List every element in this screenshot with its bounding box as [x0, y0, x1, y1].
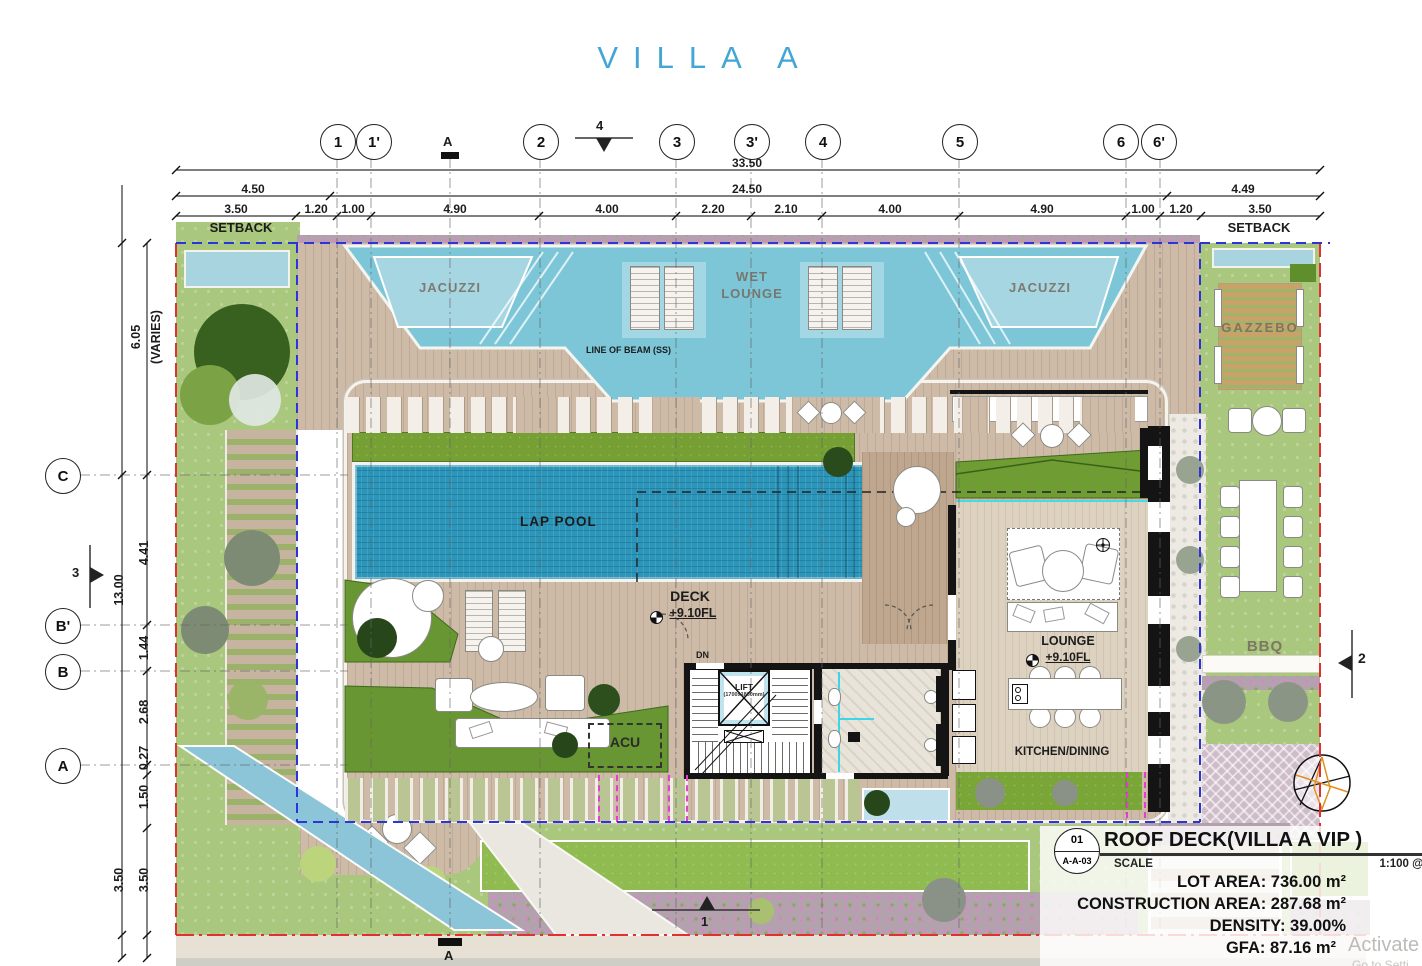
- tree-gray-3: [1202, 680, 1246, 724]
- lounge-left-wall: [948, 505, 956, 670]
- lap-pool-label: LAP POOL: [520, 514, 597, 529]
- wet-lounge-label: WET LOUNGE: [712, 268, 792, 302]
- dim-seg-4: 4.00: [585, 202, 629, 216]
- kitchen-counter-1: [952, 670, 976, 700]
- deck-level-label: +9.10FL: [662, 606, 724, 620]
- fireplace-inner: [1148, 446, 1162, 480]
- round-daybed-right: [893, 466, 941, 514]
- grid-bubble-6p: 6': [1141, 124, 1177, 160]
- watermark-line2: Go to Setti: [1352, 958, 1409, 966]
- lounge-level-label: +9.10FL: [1036, 650, 1100, 664]
- water-lounger-4: [842, 266, 872, 330]
- planter-tree-1: [864, 790, 890, 816]
- tree-green-small: [228, 680, 268, 720]
- tree-gray-5: [540, 882, 580, 922]
- dim-v-seg-5: 3.50: [137, 868, 151, 892]
- dim-v-top-note: (VARIES): [149, 310, 163, 364]
- dim-v-outer: 3.50: [112, 868, 126, 892]
- lift-shaft: [718, 670, 770, 726]
- kitchen-counter-2: [952, 704, 976, 732]
- stat-density: DENSITY: 39.00%: [1040, 917, 1346, 936]
- grid-bubble-6: 6: [1103, 124, 1139, 160]
- garden-chair-1: [1228, 408, 1252, 433]
- title-rule: [1100, 853, 1422, 856]
- section-label-left: 3: [72, 565, 79, 580]
- toilet-1: [828, 688, 841, 706]
- bush-2: [300, 846, 336, 882]
- stat-construction-area: CONSTRUCTION AREA: 287.68 m²: [1040, 895, 1346, 914]
- dining-chair-l1: [1220, 486, 1240, 508]
- tree-gray-6: [922, 878, 966, 922]
- grid-bubble-1p: 1': [356, 124, 392, 160]
- dim-v-seg-3: 0.27: [137, 746, 151, 770]
- datum-label-bottom: A: [444, 948, 453, 963]
- dim-v-seg-4: 1.50: [137, 785, 151, 809]
- acu-label: ACU: [592, 734, 658, 750]
- lap-pool: [352, 462, 872, 582]
- grid-bubble-2: 2: [523, 124, 559, 160]
- lounger-gap-5: [1082, 397, 1135, 433]
- water-lounger-1: [630, 266, 660, 330]
- drawing-title: VILLA A: [540, 40, 870, 76]
- grid-bubble-A: A: [45, 748, 81, 784]
- bush-3: [414, 866, 446, 898]
- title-block: 01 A-A-03 ROOF DECK(VILLA A VIP ) SCALE …: [1040, 826, 1422, 966]
- lounge-label: LOUNGE: [1036, 634, 1100, 648]
- water-lounger-2: [664, 266, 694, 330]
- dim-v-seg-0: 4.41: [137, 541, 151, 565]
- grid-bubble-C: C: [45, 458, 81, 494]
- core-door-gap-top: [696, 663, 724, 669]
- tree-gray-2: [181, 606, 229, 654]
- grid-bubble-1: 1: [320, 124, 356, 160]
- section-label-top: 4: [596, 118, 603, 133]
- core-door-gap-bottom: [826, 773, 854, 779]
- bath-glass-line-v: [838, 672, 840, 772]
- dining-chair-r3: [1283, 546, 1303, 568]
- dim-seg-6: 2.10: [764, 202, 808, 216]
- stair-flight-bottom: [692, 742, 808, 774]
- planter-tree-3: [1052, 780, 1078, 806]
- left-garden-water-feature: [184, 250, 290, 288]
- dim-v-seg-1: 1.44: [137, 636, 151, 660]
- gazzebo-label: GAZZEBO: [1215, 320, 1305, 335]
- toilet-2: [828, 730, 841, 748]
- grid-bubble-B: B: [45, 654, 81, 690]
- lounger-table: [478, 636, 504, 662]
- berm-tree-2: [552, 732, 578, 758]
- gazzebo-post-4: [1296, 346, 1304, 384]
- deck-level-symbol: [650, 611, 663, 624]
- stat-gfa: GFA: 87.16 m²: [1040, 939, 1336, 958]
- dim-v-top: 6.05: [129, 325, 143, 349]
- berm-tree-4: [823, 447, 853, 477]
- daybed-side-table-right: [896, 507, 916, 527]
- lounge-round-table: [1042, 550, 1084, 592]
- daybed-side-table-left: [412, 580, 444, 612]
- dining-chair-l4: [1220, 576, 1240, 598]
- lounge-level-symbol: [1026, 654, 1039, 667]
- gazzebo-planter: [1290, 264, 1316, 282]
- lounge-left-door-gap: [948, 595, 956, 640]
- grid-bubble-4: 4: [805, 124, 841, 160]
- dining-chair-r1: [1283, 486, 1303, 508]
- lounger-gap-2: [652, 397, 700, 433]
- magenta-joint-1: [598, 775, 618, 822]
- path-plant-1: [1176, 456, 1204, 484]
- jacuzzi-right-label: JACUZZI: [995, 280, 1085, 295]
- dining-chair-r2: [1283, 516, 1303, 538]
- planter-tree-2: [975, 778, 1005, 808]
- dim-v-seg-2: 2.68: [137, 700, 151, 724]
- ceiling-fixture-icon: [1096, 538, 1110, 552]
- core-left-wall: [684, 663, 690, 779]
- grid-bubble-5: 5: [942, 124, 978, 160]
- bar-back-wall: [950, 390, 1148, 394]
- gazzebo-post-3: [1214, 346, 1222, 384]
- lift-counterweight: [724, 730, 764, 743]
- path-plant-3: [1176, 636, 1202, 662]
- stair-flight-right: [772, 672, 808, 736]
- tree-gray-1: [224, 530, 280, 586]
- dim-left-end: 4.50: [223, 182, 283, 196]
- dn-label: DN: [696, 650, 709, 660]
- gazzebo-platform: [1218, 283, 1302, 390]
- sheet-number: 01: [1055, 829, 1099, 852]
- dining-chair-l2: [1220, 516, 1240, 538]
- floor-plan-canvas: VILLA A 1 1' 2 3 3' 4 5 6 6' C B' B A 4 …: [0, 0, 1422, 966]
- outdoor-dining-table: [1239, 480, 1277, 592]
- lift-size-label: (1700x1800mm): [714, 692, 774, 698]
- lift-label: LIFT: [720, 682, 768, 692]
- berm-tree-3: [588, 684, 620, 716]
- grid-bubble-3p: 3': [734, 124, 770, 160]
- bush-1: [748, 898, 774, 924]
- bath-kitchen-wall: [941, 666, 949, 776]
- divider-gap-1: [814, 700, 822, 724]
- window-gap-1: [1148, 502, 1170, 532]
- section-label-bottom: 1: [701, 914, 708, 929]
- left-garden-step-path: [225, 430, 298, 825]
- deck-label: DECK: [660, 588, 720, 604]
- dim-inner: 24.50: [717, 182, 777, 196]
- grid-bubble-3: 3: [659, 124, 695, 160]
- path-plant-2: [1176, 546, 1204, 574]
- kitchen-dining-label: KITCHEN/DINING: [1000, 746, 1124, 758]
- bbq-label: BBQ: [1235, 638, 1295, 655]
- dim-seg-10: 1.20: [1159, 202, 1203, 216]
- cooktop-burner-2: [1015, 695, 1021, 701]
- dim-v-total: 13.00: [112, 574, 126, 605]
- dim-right-end: 4.49: [1213, 182, 1273, 196]
- cooktop-burner-1: [1015, 687, 1021, 693]
- window-gap-3: [1148, 686, 1170, 712]
- datum-label-top: A: [443, 134, 452, 149]
- berm-tree-1: [357, 618, 397, 658]
- cube-chair-2: [545, 675, 585, 711]
- lounger-gap-4: [962, 397, 988, 433]
- sheet-title: ROOF DECK(VILLA A VIP ): [1104, 828, 1420, 852]
- setback-label-right: SETBACK: [1214, 220, 1304, 235]
- magenta-joint-2: [668, 775, 688, 822]
- window-gap-4: [1148, 736, 1170, 764]
- line-of-beam-label: LINE OF BEAM (SS): [586, 345, 671, 355]
- tree-palm-white: [229, 374, 281, 426]
- section-label-right: 2: [1358, 650, 1366, 666]
- bath-glass-line-h: [838, 718, 874, 720]
- dim-seg-7: 4.00: [868, 202, 912, 216]
- dining-chair-l3: [1220, 546, 1240, 568]
- dim-seg-8: 4.90: [1020, 202, 1064, 216]
- kitchen-counter-3: [952, 736, 976, 764]
- dining-chair-r4: [1283, 576, 1303, 598]
- scale-label: SCALE: [1114, 858, 1153, 870]
- sheet-reference-bubble: 01 A-A-03: [1054, 828, 1100, 874]
- stat-lot-area: LOT AREA: 736.00 m²: [1040, 873, 1346, 892]
- bar-chair-2: [1040, 424, 1064, 448]
- magenta-joint-3: [1126, 772, 1146, 818]
- dim-seg-11: 3.50: [1238, 202, 1282, 216]
- lounger-gap-1: [516, 397, 558, 433]
- setback-label-left: SETBACK: [196, 220, 286, 235]
- dim-seg-0: 3.50: [214, 202, 258, 216]
- pool-edge-lawn-strip: [352, 432, 855, 462]
- bath-mat: [848, 732, 860, 742]
- tree-gray-4: [1268, 682, 1308, 722]
- grid-bubble-Bp: B': [45, 608, 81, 644]
- deck-table-a: [820, 402, 842, 424]
- cube-chair-1: [435, 678, 473, 712]
- sheet-ref: A-A-03: [1055, 852, 1099, 870]
- garden-round-table: [1252, 406, 1282, 436]
- garden-chair-2: [1282, 408, 1306, 433]
- window-gap-2: [1148, 596, 1170, 624]
- garden-path-strip: [1202, 655, 1320, 673]
- dim-seg-5: 2.20: [691, 202, 735, 216]
- watermark-line1: Activate: [1348, 934, 1419, 957]
- water-lounger-3: [808, 266, 838, 330]
- jacuzzi-left-label: JACUZZI: [405, 280, 495, 295]
- scale-value: 1:100 @A3: [1280, 858, 1422, 870]
- dim-seg-3: 4.90: [433, 202, 477, 216]
- dim-seg-2: 1.00: [331, 202, 375, 216]
- oval-coffee-table: [470, 682, 538, 712]
